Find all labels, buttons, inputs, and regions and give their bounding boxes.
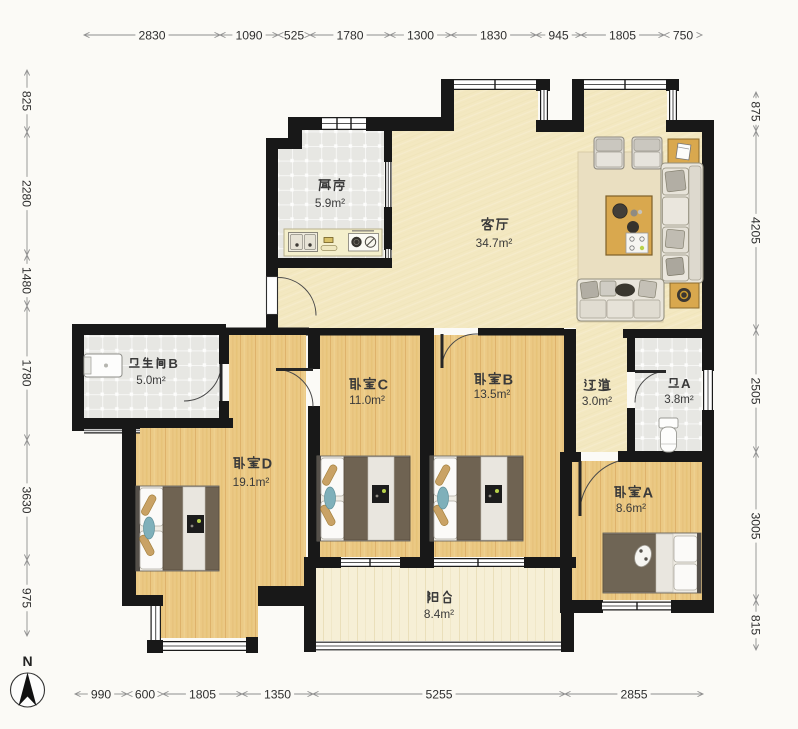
svg-text:4205: 4205: [749, 217, 763, 244]
svg-text:2505: 2505: [749, 377, 763, 404]
svg-text:1480: 1480: [20, 267, 34, 294]
svg-text:A: A: [643, 486, 654, 502]
svg-text:11.0m²: 11.0m²: [349, 393, 385, 407]
svg-text:1300: 1300: [407, 28, 434, 42]
svg-text:750: 750: [673, 28, 694, 42]
svg-text:N: N: [22, 653, 32, 669]
svg-text:1805: 1805: [609, 28, 636, 42]
svg-text:19.1m²: 19.1m²: [233, 475, 270, 489]
svg-text:3.8m²: 3.8m²: [664, 394, 694, 406]
svg-text:1090: 1090: [235, 28, 262, 42]
svg-text:A: A: [681, 376, 691, 391]
svg-text:815: 815: [749, 615, 763, 636]
svg-text:525: 525: [284, 28, 305, 42]
svg-text:990: 990: [91, 687, 112, 701]
svg-text:875: 875: [749, 101, 763, 122]
svg-text:2280: 2280: [20, 180, 34, 207]
svg-text:975: 975: [20, 588, 34, 609]
svg-text:825: 825: [20, 91, 34, 112]
svg-text:5.0m²: 5.0m²: [136, 375, 166, 387]
svg-text:D: D: [262, 457, 272, 473]
svg-text:1805: 1805: [189, 687, 216, 701]
svg-text:945: 945: [548, 28, 569, 42]
svg-text:3.0m²: 3.0m²: [582, 394, 612, 408]
svg-text:C: C: [378, 378, 389, 394]
svg-text:1780: 1780: [336, 28, 363, 42]
svg-text:3005: 3005: [749, 512, 763, 539]
svg-text:34.7m²: 34.7m²: [476, 236, 513, 250]
svg-text:13.5m²: 13.5m²: [474, 387, 511, 401]
svg-text:5255: 5255: [425, 687, 452, 701]
svg-text:B: B: [168, 356, 178, 371]
svg-text:5.9m²: 5.9m²: [315, 196, 345, 210]
svg-text:600: 600: [135, 687, 156, 701]
svg-text:2855: 2855: [620, 687, 647, 701]
svg-text:1830: 1830: [480, 28, 507, 42]
svg-text:1780: 1780: [20, 359, 34, 386]
svg-text:1350: 1350: [264, 687, 291, 701]
svg-text:8.4m²: 8.4m²: [424, 607, 454, 621]
svg-text:3630: 3630: [20, 486, 34, 513]
svg-text:2830: 2830: [138, 28, 165, 42]
svg-text:8.6m²: 8.6m²: [616, 501, 646, 515]
